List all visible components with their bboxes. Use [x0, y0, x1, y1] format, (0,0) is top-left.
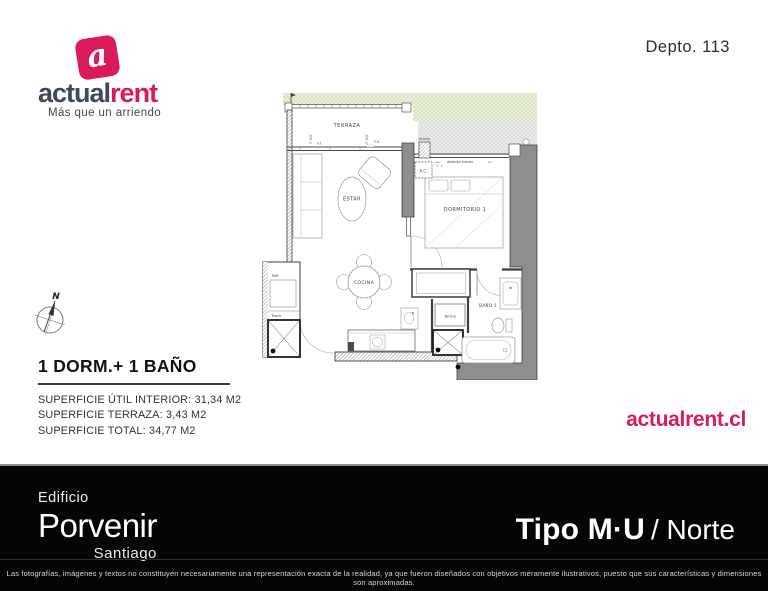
- summary-line-interior: SUPERFICIE ÚTIL INTERIOR: 31,34 M2: [38, 393, 241, 409]
- area-summary: 1 DORM.+ 1 BAÑO SUPERFICIE ÚTIL INTERIOR…: [38, 356, 241, 439]
- website-link[interactable]: actualrent.cl: [626, 408, 746, 432]
- actualrent-logo-icon: a: [74, 34, 121, 81]
- brand-part-rent: rent: [110, 78, 157, 108]
- window-label-ve: v.e.: [374, 140, 380, 144]
- compass-icon: N: [24, 288, 80, 344]
- rail-label-1: P. S/K: [309, 134, 313, 144]
- floor-plan: TERRAZA P. S/K P. S/K v.f. v.e. ducto A.…: [255, 80, 565, 380]
- room-label-cocina: COCINA: [354, 280, 375, 286]
- unit-type-block: Tipo M·U/ Norte: [516, 513, 735, 547]
- summary-line-terraza: SUPERFICIE TERRAZA: 3,43 M2: [38, 408, 241, 424]
- termo-label: Termo: [443, 314, 456, 319]
- summary-line-total: SUPERFICIE TOTAL: 34,77 M2: [38, 424, 241, 440]
- unit-number: Depto. 113: [645, 38, 730, 57]
- ref-label: Ref.: [272, 273, 279, 278]
- brand-wordmark: actualrent: [38, 78, 157, 109]
- summary-divider: [38, 383, 230, 385]
- room-label-bano: BAÑO 1: [479, 303, 497, 308]
- ref-rack-closet: [263, 262, 300, 357]
- compass-north-label: N: [52, 292, 60, 302]
- room-label-dormitorio: DORMITORIO 1: [444, 207, 487, 213]
- unit-orientation: / Norte: [651, 514, 735, 545]
- summary-title: 1 DORM.+ 1 BAÑO: [38, 356, 241, 377]
- brand-tagline: Más que un arriendo: [48, 107, 161, 119]
- duct-label: ducto: [419, 136, 430, 141]
- room-label-terraza: TERRAZA: [333, 123, 361, 129]
- building-block: Edificio Porvenir Santiago: [38, 490, 157, 562]
- building-label: Edificio: [38, 490, 157, 506]
- footer-bar: Edificio Porvenir Santiago Tipo M·U/ Nor…: [0, 464, 768, 591]
- unit-type: Tipo M·U: [516, 513, 645, 546]
- insulation-label: Aislación Interior: [447, 160, 474, 164]
- ac-label: A.C.: [419, 169, 427, 174]
- brand-part-actual: actual: [38, 78, 110, 108]
- window-label-vf: v.f.: [317, 142, 322, 146]
- rail-label-2: P. S/K: [365, 134, 369, 144]
- room-label-estar: ESTAR: [343, 197, 361, 203]
- insulation-vf-label: v.f.: [488, 160, 492, 164]
- insulation-ve-label: v.e.: [435, 160, 440, 164]
- building-name: Porvenir: [38, 507, 157, 545]
- brochure-page: a actualrent Más que un arriendo Depto. …: [0, 0, 768, 591]
- logo-letter: a: [85, 39, 110, 73]
- disclaimer-text: Las fotografías, imágenes y textos no co…: [0, 569, 768, 587]
- footer-divider: [0, 559, 768, 560]
- rack-label: Rack: [272, 313, 282, 318]
